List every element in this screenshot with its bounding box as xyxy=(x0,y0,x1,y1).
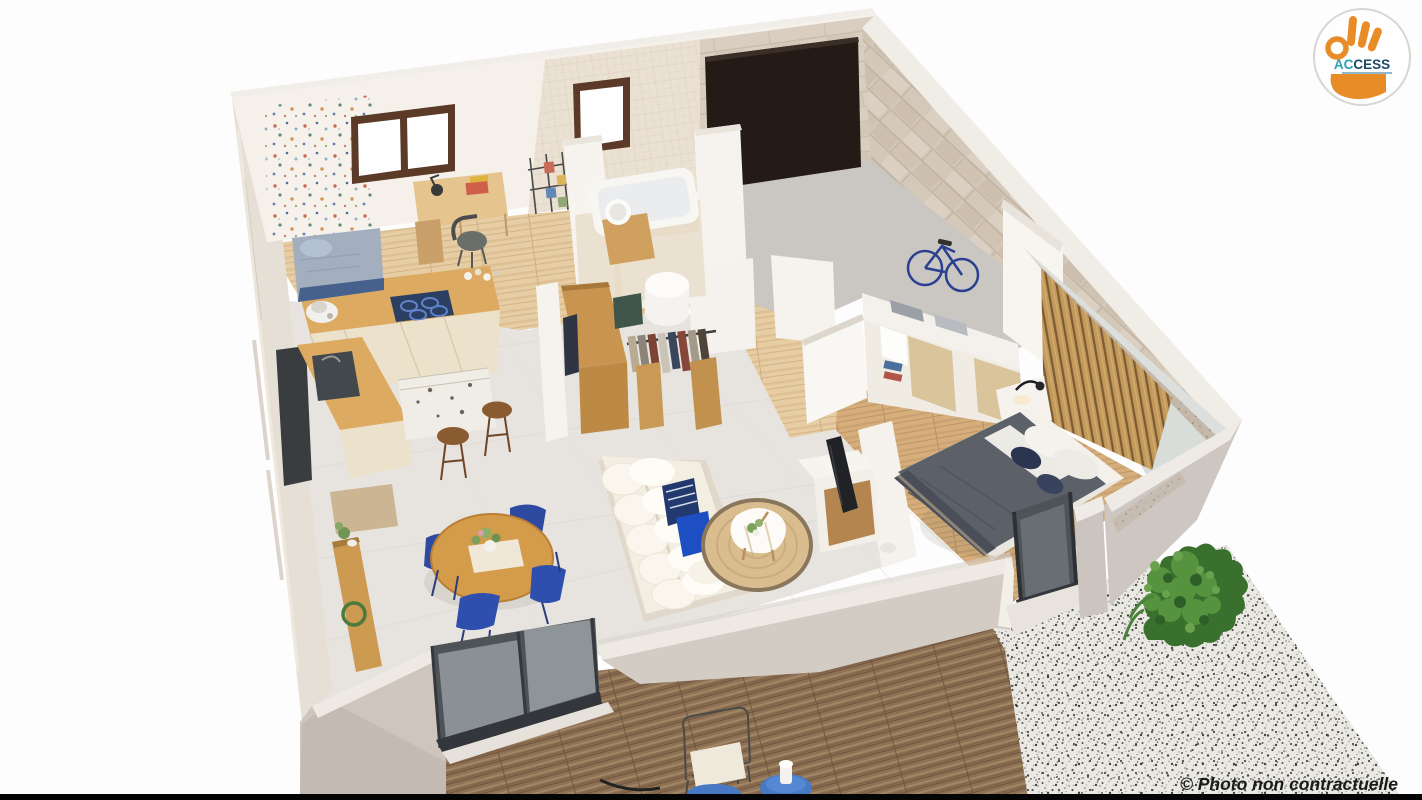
svg-text:ACCESS: ACCESS xyxy=(1334,57,1390,72)
svg-text:© Photo non contractuelle: © Photo non contractuelle xyxy=(1180,774,1398,794)
